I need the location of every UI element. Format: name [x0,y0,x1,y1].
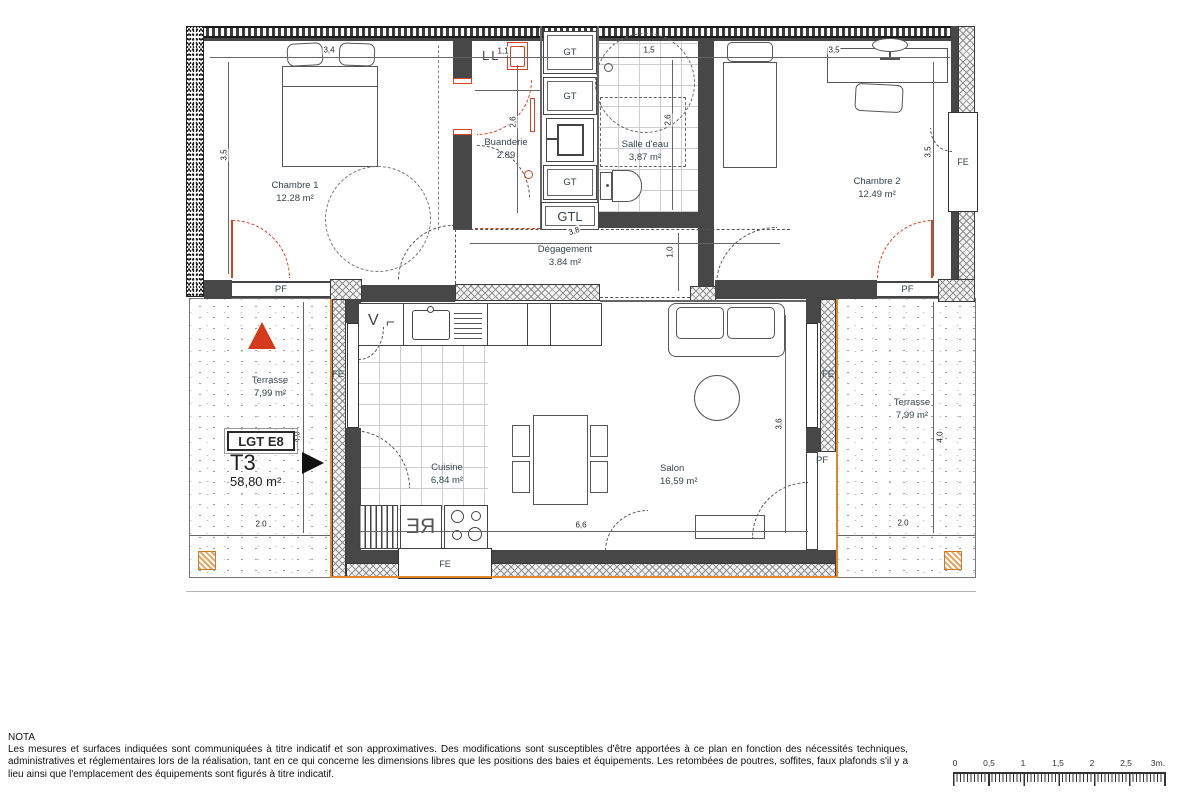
window-pf-chambre2: PF [877,281,938,298]
window-pf-chambre1: PF [232,281,330,298]
window-label: FE [957,157,969,167]
cooktop-burner [451,510,464,523]
duct-gt-3: GT [543,165,597,200]
door-arc-pf-salon [752,482,808,538]
terrace-left-divider-line [190,535,330,536]
duct-gt-2: GT [543,77,597,115]
dim-line-degagement-v [678,233,679,291]
dim-line-living [360,531,808,532]
window-fe-bottom: FE [398,548,492,579]
duct-label: GTL [557,209,582,224]
single-bed [723,62,777,168]
bed-sheet-line [282,86,378,87]
nota-block: NOTA Les mesures et surfaces indiquées s… [8,732,908,781]
water-heater-handle [546,138,557,140]
room-area: 12.49 m² [827,189,927,202]
window-label-pf-salon: PF [816,455,828,466]
duct-label: GT [563,177,576,188]
monitor-base [880,58,900,60]
dining-chair [512,461,530,493]
plot-boundary-line [186,591,976,592]
unit-total-area: 58,80 m² [230,474,281,489]
wall-left-party [186,26,204,297]
dim-label: 1,5 [642,46,655,55]
double-bed [282,66,378,167]
door-arc-pf-chambre2 [877,220,933,278]
wall-salle-eau-bottom [597,212,698,228]
room-label-salon: Salon16,59 m² [660,463,730,488]
dim-label: 3,5 [220,148,229,161]
dim-label: 3,4 [322,46,335,55]
sink-bowl [412,310,450,340]
cooktop-burner [471,511,481,521]
terrace-left-drain-square [198,551,216,570]
dim-label: 2,6 [509,115,518,128]
sofa-cushion [676,307,724,339]
cooktop [444,505,488,549]
toilet-bowl [612,170,642,202]
dim-label: 2.0 [896,519,909,528]
dim-label: 3,5 [827,46,840,55]
duct-column-right-line [597,26,599,212]
coffee-table [694,375,740,421]
north-arrow-icon [248,322,276,349]
scale-tick-label: 0 [953,758,958,768]
floor-plan-canvas: FE PF PF FE GT GT GT GTL GT V [0,0,1186,800]
counter-divider [550,303,551,346]
dim-label: 3,6 [775,417,784,430]
wall-mid-a [204,280,232,299]
closet-dashed-line [438,45,439,230]
room-name: Terrasse [225,375,315,388]
nota-body: Les mesures et surfaces indiquées sont c… [8,744,908,781]
wall-bottom-insulation-right [490,563,836,577]
room-name: Terrasse [867,397,957,410]
salon-top-line [600,300,812,302]
room-name: Salle d'eau [605,139,685,152]
dim-line-terrace-left [303,302,304,533]
duct-strip-red [530,98,535,132]
wall-bottom-right [490,550,836,563]
room-name: Buanderie [471,137,541,150]
scale-tick-label: 0,5 [983,758,995,768]
unit-badge: LGT E8 [227,431,295,451]
door-arc-pf-chambre1 [232,220,290,278]
dim-label: 2.0 [254,520,267,529]
wall-kitchen-insulation [332,299,346,577]
room-name: Chambre 1 [245,180,345,193]
door-arc-buanderie-red [477,80,532,135]
room-area: 7,99 m² [225,388,315,401]
scale-tick-label: 2,5 [1120,758,1132,768]
room-label-terrasse-right: Terrasse7,99 m² [867,397,957,422]
dim-line-ch1 [228,62,229,274]
wall-chambre1-buanderie-upper [453,40,472,78]
terrace-right-divider-line [838,535,975,536]
sofa-cushion [727,307,775,339]
room-area: 6,84 m² [407,475,487,488]
room-name: Chambre 2 [827,176,927,189]
wall-salon-mid [806,428,820,452]
wall-pier-right [938,279,975,302]
desk-monitor [872,38,908,52]
dim-line-ch2 [933,62,934,276]
cooktop-burner [468,527,482,541]
room-name: Salon [660,463,730,476]
dining-chair [590,461,608,493]
degagement-dashed-boundary [455,229,790,284]
room-name: Dégagement [520,244,610,257]
desk-chair [854,83,903,113]
door-jamb-buanderie-bottom [453,129,472,135]
pillow [339,42,376,66]
window-label-fe-cuisine: FE [332,369,344,380]
counter-divider [527,303,528,346]
room-label-buanderie: Buanderie2.89 [471,137,541,162]
water-heater-inner [557,124,584,156]
window-label: PF [901,284,913,295]
duct-label: GT [563,91,576,102]
scale-tick-label: 3m. [1151,758,1165,768]
scale-tick-label: 1,5 [1052,758,1064,768]
room-name: Cuisine [407,462,487,475]
shower-drain [604,63,613,72]
room-label-chambre2: Chambre 212.49 m² [827,176,927,201]
duct-gt-1: GT [543,31,597,74]
wall-chambre1-bottom [362,285,455,302]
window-fe-chambre2: FE [948,112,978,212]
nota-title: NOTA [8,732,908,744]
opening-degagement-salon [600,297,690,298]
toilet-button [606,184,609,187]
wall-chambre1-buanderie-lower [453,135,472,230]
room-label-degagement: Dégagement3.84 m² [520,244,610,269]
dim-label: 1,1 [496,47,509,56]
window-fe-salon [806,323,818,428]
bottom-trim-line [330,576,838,578]
wall-bottom-left [346,550,400,563]
dim-label: 4,0 [936,430,945,443]
room-label-salle-eau: Salle d'eau3,87 m² [605,139,685,164]
counter-divider [403,303,404,346]
window-label: PF [275,284,287,295]
dining-chair [512,425,530,457]
room-area: 2.89 [471,150,541,163]
window-label: FE [439,559,451,569]
dishwasher [358,505,398,549]
desk [827,48,948,83]
door-jamb-buanderie-top [453,78,472,84]
counter-divider [487,303,488,346]
sink-faucet [427,306,434,313]
dim-line-top [210,57,950,58]
dim-label: 2,6 [664,113,673,126]
window-label-fe-salon: FE [822,369,834,380]
pillow [286,42,323,67]
wall-bottom-insulation-left [346,563,400,577]
room-label-terrasse-left: Terrasse7,99 m² [225,375,315,400]
terrace-right-drain-square [944,551,962,570]
entry-arrow-icon [302,452,324,474]
unit-badge-label: LGT E8 [238,434,284,449]
room-label-chambre1: Chambre 112.28 m² [245,180,345,205]
refrigerator: RE [400,505,442,549]
sink-drainer [454,311,482,339]
room-area: 7,99 m² [867,410,957,423]
dining-chair [590,425,608,457]
door-leaf-pf-chambre1 [231,220,233,278]
dining-table [533,415,588,505]
room-label-cuisine: Cuisine6,84 m² [407,462,487,487]
dim-line-sde [672,60,673,210]
dim-label: 3,5 [924,145,933,158]
dim-line-salon [785,315,786,533]
unit-type: T3 [230,450,256,476]
terrace-right-trim-line [836,299,838,577]
dim-line-degagement [470,243,780,244]
room-area: 3,87 m² [605,152,685,165]
scale-tick-label: 1 [1021,758,1026,768]
hood-corner-symbol: ⌐ [386,314,395,331]
scale-bar-major-ticks [953,772,1167,786]
room-area: 12.28 m² [245,193,345,206]
room-area: 3.84 m² [520,257,610,270]
wall-degagement-bottom [455,284,600,301]
dim-label: 1,0 [666,245,675,258]
duct-gtl: GTL [541,202,599,230]
refrigerator-label: RE [406,515,435,539]
scale-tick-label: 2 [1090,758,1095,768]
wall-salon-top [806,299,820,323]
room-area: 16,59 m² [660,476,730,489]
dim-label: 6,6 [574,521,587,530]
pillow [727,42,773,62]
